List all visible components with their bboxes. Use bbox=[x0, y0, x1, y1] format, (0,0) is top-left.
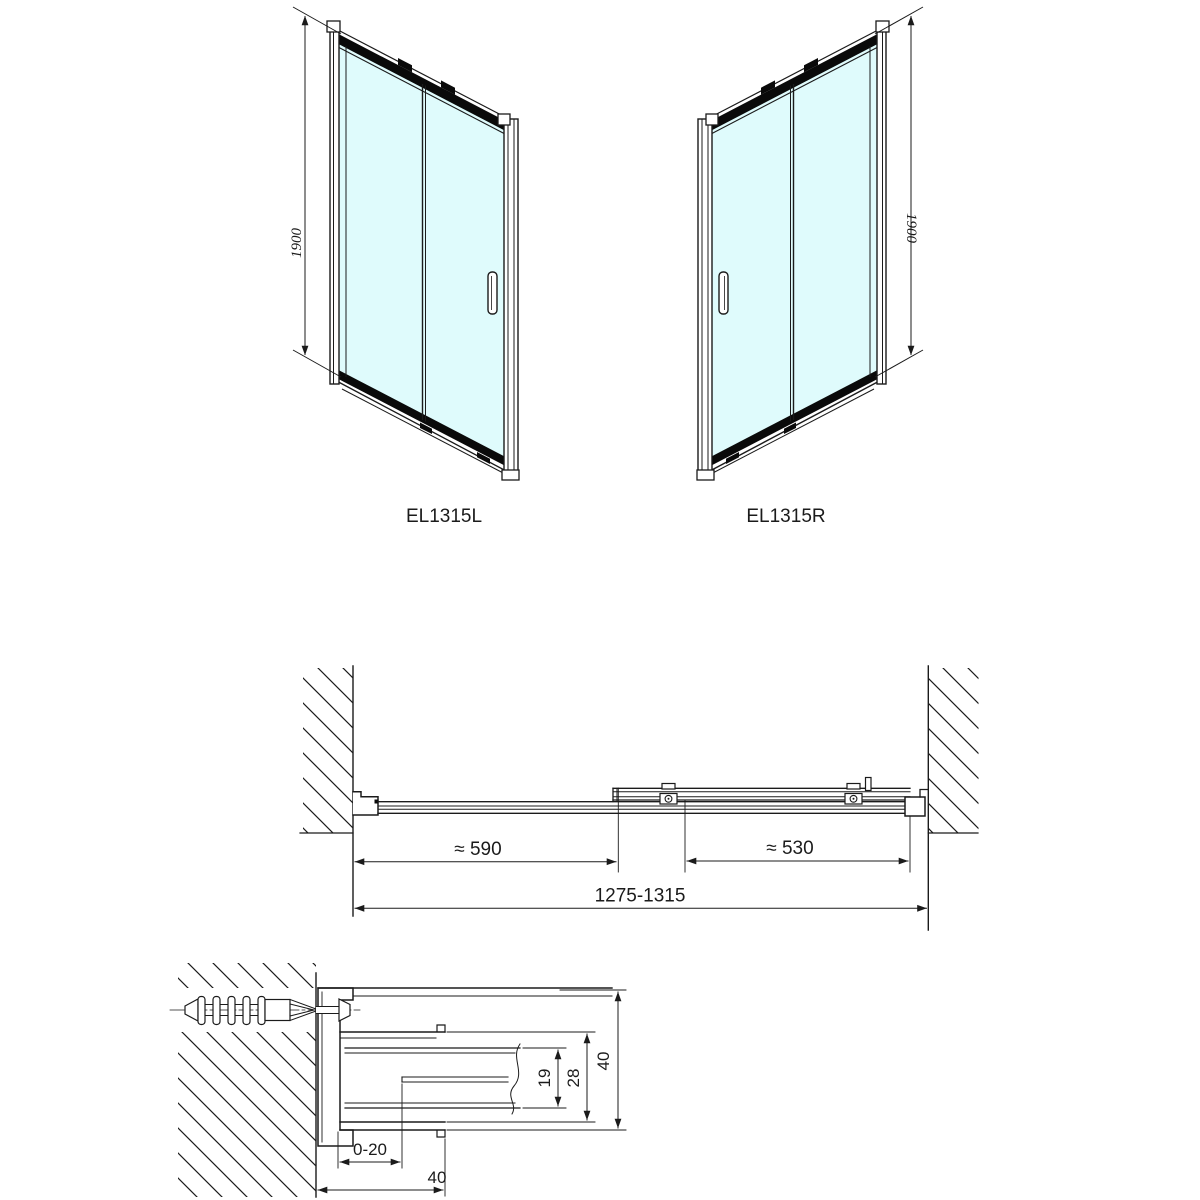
front-view-left: 1900 EL1315L bbox=[289, 7, 519, 527]
dim-fixed-panel: ≈ 590 bbox=[355, 788, 618, 872]
dim-profile-depth: 40 bbox=[447, 990, 626, 1130]
roller-right bbox=[845, 784, 862, 805]
dim-sliding-panel: ≈ 530 bbox=[685, 800, 910, 872]
dim-text-40-right: 40 bbox=[594, 1052, 613, 1071]
shower-door-drawing: 1900 EL1315L 1900 EL1315R bbox=[0, 0, 1200, 1200]
dim-glass-channel: 19 bbox=[523, 1048, 566, 1108]
section-detail-view: 0-20 40 19 28 40 bbox=[170, 963, 626, 1197]
stopper-pin bbox=[866, 778, 872, 791]
wall-hatch-left bbox=[303, 668, 353, 833]
height-dim-text-left: 1900 bbox=[289, 228, 305, 259]
dim-text-0-20: 0-20 bbox=[353, 1140, 387, 1159]
end-cap-right bbox=[905, 797, 925, 816]
technical-drawing-sheet: 1900 EL1315L 1900 EL1315R bbox=[0, 0, 1200, 1200]
dim-text-530: ≈ 530 bbox=[766, 838, 813, 859]
dim-text-overall: 1275-1315 bbox=[595, 886, 686, 907]
label-el1315l: EL1315L bbox=[406, 506, 482, 527]
dim-wall-adjustment: 0-20 bbox=[338, 1084, 402, 1168]
mirrored-door bbox=[697, 21, 889, 480]
wall-hatch-right bbox=[929, 668, 979, 833]
dowel-fin bbox=[213, 997, 220, 1025]
dim-text-28: 28 bbox=[564, 1069, 583, 1088]
dim-text-19: 19 bbox=[535, 1069, 554, 1088]
wall-bracket-right bbox=[920, 790, 928, 798]
front-view-right: 1900 EL1315R bbox=[697, 7, 923, 527]
dim-text-590: ≈ 590 bbox=[454, 839, 501, 860]
height-dim-text-right: 1900 bbox=[903, 213, 919, 244]
dowel-body bbox=[265, 1000, 290, 1021]
dowel-fin bbox=[198, 997, 205, 1025]
frame-profile-section bbox=[340, 1025, 520, 1137]
roller-left bbox=[660, 784, 677, 805]
screw-head bbox=[339, 999, 350, 1021]
plan-view: ≈ 590 ≈ 530 1275-1315 bbox=[300, 666, 979, 930]
dowel-fin bbox=[243, 997, 250, 1025]
dowel-fin bbox=[258, 997, 265, 1025]
dim-overall-width: 1275-1315 bbox=[355, 886, 927, 909]
dowel-fin bbox=[228, 997, 235, 1025]
label-el1315r: EL1315R bbox=[746, 506, 825, 527]
dim-text-40-bottom: 40 bbox=[428, 1168, 447, 1187]
wall-bracket-left bbox=[353, 792, 378, 815]
